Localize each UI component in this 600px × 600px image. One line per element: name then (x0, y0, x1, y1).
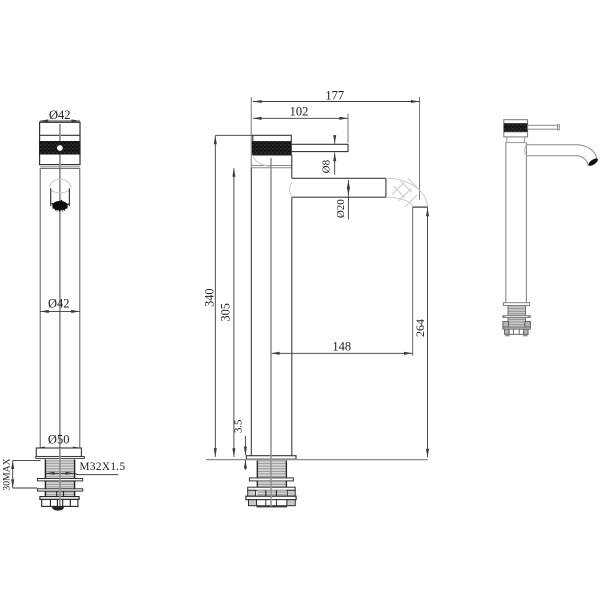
svg-text:Ø50: Ø50 (48, 433, 70, 447)
svg-text:30MAX: 30MAX (1, 458, 12, 490)
svg-text:148: 148 (332, 339, 351, 353)
svg-text:Ø20: Ø20 (335, 199, 347, 218)
svg-text:340: 340 (202, 288, 216, 306)
svg-text:Ø8: Ø8 (321, 159, 333, 173)
svg-text:Ø42: Ø42 (48, 296, 70, 310)
svg-text:305: 305 (218, 303, 232, 321)
svg-text:3.5: 3.5 (232, 420, 244, 434)
svg-text:177: 177 (325, 88, 344, 102)
svg-text:M32X1.5: M32X1.5 (80, 461, 126, 473)
svg-text:Ø42: Ø42 (49, 108, 71, 122)
svg-text:264: 264 (413, 319, 427, 337)
svg-text:102: 102 (290, 104, 309, 118)
